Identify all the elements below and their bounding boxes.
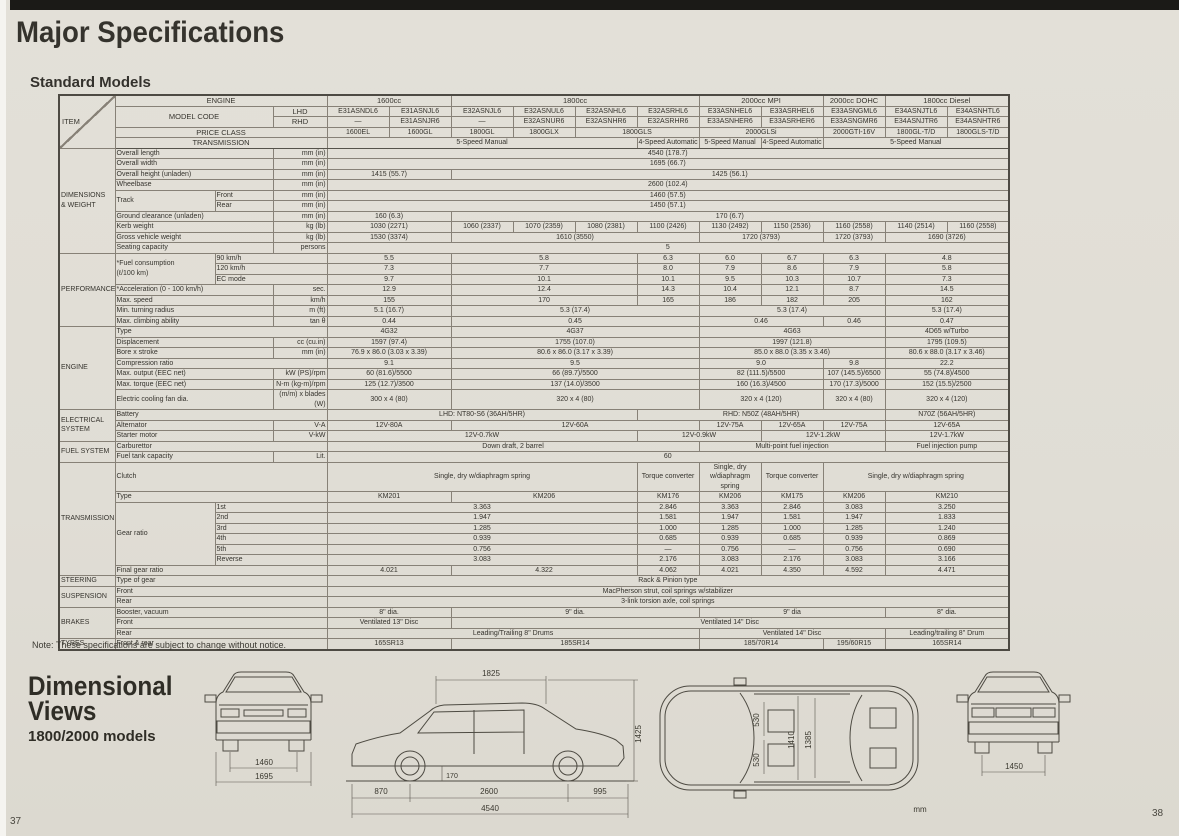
spec-value: 0.685 (637, 534, 699, 545)
row-label: Max. output (EEC net) (115, 369, 273, 380)
dimensional-views-section: Dimensional Views 1800/2000 models (28, 660, 1158, 828)
row-unit: mm (in) (273, 159, 327, 170)
spec-value: 165 (637, 295, 699, 306)
spec-value: 0.756 (699, 544, 761, 555)
spec-value: RHD: N50Z (48AH/5HR) (637, 410, 885, 421)
spec-value: 1.947 (823, 513, 885, 524)
section-label: BRAKES (59, 607, 115, 639)
spec-row: TRANSMISSION5-Speed Manual4-Speed Automa… (59, 138, 1009, 149)
spec-value: 4G37 (451, 327, 699, 338)
spec-value: 1.000 (761, 523, 823, 534)
spec-value: 1.285 (699, 523, 761, 534)
transmission-type: 5-Speed Manual (327, 138, 637, 149)
spec-value: 82 (111.5)/5500 (699, 369, 823, 380)
spec-value: 12V-65A (885, 420, 1009, 431)
spec-value: 55 (74.8)/4500 (885, 369, 1009, 380)
spec-value: 1460 (57.5) (327, 190, 1009, 201)
rear-track-dim: 1450 (1005, 762, 1023, 771)
spec-row: Ground clearance (unladen)mm (in)160 (6.… (59, 211, 1009, 222)
row-group-label: *Fuel consumption (ℓ/100 km) (115, 253, 215, 285)
spec-value: 1695 (66.7) (327, 159, 1009, 170)
spec-value: 1070 (2359) (513, 222, 575, 233)
side-roof-dim: 1825 (482, 669, 500, 678)
model-code-header: MODEL CODE (115, 106, 273, 127)
row-unit: N-m (kg-m)/rpm (273, 379, 327, 390)
dimensional-heading-line2: Views (28, 699, 172, 724)
price-class: 1800GL (451, 127, 513, 138)
spec-row: TypeKM201KM206KM176KM206KM175KM206KM210 (59, 492, 1009, 503)
spec-row: ELECTRICAL SYSTEMBatteryLHD: NT80-S6 (36… (59, 410, 1009, 421)
spec-value: 1.240 (885, 523, 1009, 534)
transmission-type: 5-Speed Manual (699, 138, 761, 149)
top-front-seat-dim: 530 (752, 713, 761, 727)
spec-value: 7.3 (885, 274, 1009, 285)
spec-value: N70Z (56AH/5HR) (885, 410, 1009, 421)
spec-value: 6.7 (761, 253, 823, 264)
spec-row: TrackFrontmm (in)1460 (57.5) (59, 190, 1009, 201)
spec-row: SUSPENSIONFrontMacPherson strut, coil sp… (59, 586, 1009, 597)
model-code-rhd: — (451, 117, 513, 128)
spec-value: 1130 (2492) (699, 222, 761, 233)
row-label: Max. climbing ability (115, 316, 273, 327)
section-label: STEERING (59, 576, 115, 587)
spec-value: 7.9 (699, 264, 761, 275)
spec-value: 0.939 (823, 534, 885, 545)
row-label: Fuel tank capacity (115, 452, 273, 463)
price-class: 2000GLSi (699, 127, 823, 138)
spec-value: 1597 (97.4) (327, 337, 451, 348)
spec-value: Ventilated 14" Disc (699, 628, 885, 639)
price-class: 1800GL-T/D (885, 127, 947, 138)
spec-value: 0.939 (327, 534, 637, 545)
spec-value: 5.3 (17.4) (699, 306, 885, 317)
model-code-rhd: E33ASRHER6 (761, 117, 823, 128)
spec-value: 4.021 (699, 565, 761, 576)
spec-value: 8.6 (761, 264, 823, 275)
spec-value: Single, dry w/diaphragm spring (823, 462, 1009, 492)
row-sub-label: 5th (215, 544, 327, 555)
spec-row: BRAKESBooster, vacuum8" dia.9" dia.9" di… (59, 607, 1009, 618)
spec-value: 80.6 x 88.0 (3.17 x 3.46) (885, 348, 1009, 359)
spec-value: 186 (699, 295, 761, 306)
spec-value: 3.363 (699, 502, 761, 513)
spec-value: 14.5 (885, 285, 1009, 296)
transmission-header: TRANSMISSION (115, 138, 327, 149)
spec-value: 320 x 4 (120) (885, 390, 1009, 410)
spec-value: KM206 (823, 492, 885, 503)
row-unit: mm (in) (273, 190, 327, 201)
spec-value: 10.3 (761, 274, 823, 285)
spec-value: 5.3 (17.4) (451, 306, 699, 317)
spec-value: 1720 (3793) (699, 232, 823, 243)
row-group-label: Track (115, 190, 215, 211)
spec-row: FUEL SYSTEMCarburettorDown draft, 2 barr… (59, 441, 1009, 452)
spec-value: 0.690 (885, 544, 1009, 555)
spec-value: 3-link torsion axle, coil springs (327, 597, 1009, 608)
spec-value: 10.1 (451, 274, 637, 285)
row-unit: V-A (273, 420, 327, 431)
row-sub-label: EC mode (215, 274, 327, 285)
spec-value: 1690 (3726) (885, 232, 1009, 243)
spec-value: Multi-point fuel injection (699, 441, 885, 452)
spec-value: Single, dry w/diaphragm spring (327, 462, 637, 492)
spec-value: KM176 (637, 492, 699, 503)
spec-value: 1415 (55.7) (327, 169, 451, 180)
row-label: Starter motor (115, 431, 273, 442)
model-code-lhd: E34ASNHTL6 (947, 106, 1009, 117)
spec-value: 76.9 x 86.0 (3.03 x 3.39) (327, 348, 451, 359)
spec-value: 8" dia. (327, 607, 451, 618)
spec-row: PRICE CLASS1600EL1600GL1800GL1800GLX1800… (59, 127, 1009, 138)
spec-value: 1795 (109.5) (885, 337, 1009, 348)
spec-value: 1450 (57.1) (327, 201, 1009, 212)
spec-value: 300 x 4 (80) (327, 390, 451, 410)
spec-value: 3.083 (823, 502, 885, 513)
row-sub-label: Reverse (215, 555, 327, 566)
page-number-left: 37 (10, 816, 21, 827)
spec-row: AlternatorV-A12V-80A12V-60A12V-75A12V-65… (59, 420, 1009, 431)
spec-value: KM210 (885, 492, 1009, 503)
spec-value: 4D65 w/Turbo (885, 327, 1009, 338)
spec-value: Down draft, 2 barrel (327, 441, 699, 452)
spec-value: 1.285 (823, 523, 885, 534)
row-label: Overall width (115, 159, 273, 170)
spec-value: 8.0 (637, 264, 699, 275)
row-unit: kg (lb) (273, 232, 327, 243)
spec-value: 10.4 (699, 285, 761, 296)
spec-value: 3.363 (327, 502, 637, 513)
spec-value: 1997 (121.8) (699, 337, 885, 348)
spec-row: Overall widthmm (in)1695 (66.7) (59, 159, 1009, 170)
section-label: FUEL SYSTEM (59, 441, 115, 462)
spec-row: Min. turning radiusm (ft)5.1 (16.7)5.3 (… (59, 306, 1009, 317)
front-view-drawing: 1460 1695 (188, 660, 338, 820)
spec-value: 0.44 (327, 316, 451, 327)
transmission-type: 4-Speed Automatic (761, 138, 823, 149)
section-label: ELECTRICAL SYSTEM (59, 410, 115, 442)
spec-value: 0.939 (699, 534, 761, 545)
model-code-lhd: E31ASNJL6 (389, 106, 451, 117)
side-view-drawing: 1825 1425 170 870 2600 995 4540 (338, 660, 648, 825)
spec-row: Compression ratio9.19.59.09.822.2 (59, 358, 1009, 369)
spec-value: 4.322 (451, 565, 637, 576)
spec-value: 12V-80A (327, 420, 451, 431)
row-label: Type of gear (115, 576, 327, 587)
spec-value: Leading/trailing 8" Drum (885, 628, 1009, 639)
row-label: Bore x stroke (115, 348, 273, 359)
spec-value: 12V-60A (451, 420, 699, 431)
row-unit: Lit. (273, 452, 327, 463)
spec-value: 9" dia (699, 607, 885, 618)
spec-value: 1.581 (761, 513, 823, 524)
spec-value: LHD: NT80-S6 (36AH/5HR) (327, 410, 637, 421)
row-label: Seating capacity (115, 243, 273, 254)
spec-value: 3.250 (885, 502, 1009, 513)
row-label: Gross vehicle weight (115, 232, 273, 243)
spec-value: 4.471 (885, 565, 1009, 576)
spec-value: 4.8 (885, 253, 1009, 264)
model-code-lhd: E31ASNDL6 (327, 106, 389, 117)
spec-value: 1080 (2381) (575, 222, 637, 233)
spec-value: 85.0 x 88.0 (3.35 x 3.46) (699, 348, 885, 359)
spec-value: — (761, 544, 823, 555)
spec-value: 170 (451, 295, 637, 306)
spec-value: 7.7 (451, 264, 637, 275)
section-label: ENGINE (59, 327, 115, 410)
spec-value: 9.8 (823, 358, 885, 369)
spec-value: 5.1 (16.7) (327, 306, 451, 317)
spec-value: 165SR13 (327, 639, 451, 650)
spec-value: 4.021 (327, 565, 451, 576)
spec-value: 12.1 (761, 285, 823, 296)
spec-row: Bore x strokemm (in)76.9 x 86.0 (3.03 x … (59, 348, 1009, 359)
row-unit: V-kW (273, 431, 327, 442)
model-code-lhd: E32ASNJL6 (451, 106, 513, 117)
spec-value: 5.8 (451, 253, 637, 264)
spec-row: *Acceleration (0 - 100 km/h)sec.12.912.4… (59, 285, 1009, 296)
row-unit: kW (PS)/rpm (273, 369, 327, 380)
spec-value: 0.756 (823, 544, 885, 555)
model-code-rhd: E33ASNGMR6 (823, 117, 885, 128)
spec-row: STEERINGType of gearRack & Pinion type (59, 576, 1009, 587)
spec-value: 4G63 (699, 327, 885, 338)
row-label: *Acceleration (0 - 100 km/h) (115, 285, 273, 296)
spec-table-head: ITEMENGINE1600cc1800cc2000cc MPI2000cc D… (59, 95, 1009, 148)
front-track-dim: 1460 (255, 758, 273, 767)
spec-row: Overall height (unladen)mm (in)1415 (55.… (59, 169, 1009, 180)
spec-value: 1.581 (637, 513, 699, 524)
row-unit: mm (in) (273, 169, 327, 180)
spec-value: 12V-65A (761, 420, 823, 431)
spec-value: 182 (761, 295, 823, 306)
dimension-unit-label: mm (913, 805, 927, 814)
row-label: Battery (115, 410, 327, 421)
spec-value: Torque converter (637, 462, 699, 492)
spec-value: 170 (17.3)/5000 (823, 379, 885, 390)
model-code-rhd: — (327, 117, 389, 128)
page-number-right: 38 (1152, 808, 1163, 819)
spec-value: 7.9 (823, 264, 885, 275)
model-code-rhd: E34ASNJTR6 (885, 117, 947, 128)
rear-view-drawing: 1450 (938, 660, 1088, 820)
section-label: TRANSMISSION (59, 462, 115, 576)
spec-value: 195/60R15 (823, 639, 885, 650)
spec-value: 12V-0.9kW (637, 431, 761, 442)
side-height-dim: 1425 (634, 725, 643, 743)
spec-value: 6.3 (637, 253, 699, 264)
spec-row: Max. torque (EEC net)N-m (kg-m)/rpm125 (… (59, 379, 1009, 390)
spec-value: Rack & Pinion type (327, 576, 1009, 587)
spec-value: 9.7 (327, 274, 451, 285)
spec-row: Starter motorV-kW12V-0.7kW12V-0.9kW12V-1… (59, 431, 1009, 442)
spec-value: 1530 (3374) (327, 232, 451, 243)
spec-value: 320 x 4 (120) (699, 390, 823, 410)
spec-value: 320 x 4 (80) (451, 390, 699, 410)
model-code-lhd: E33ASRHEL6 (761, 106, 823, 117)
row-label: Compression ratio (115, 358, 327, 369)
spec-value: 1100 (2426) (637, 222, 699, 233)
spec-value: 10.1 (637, 274, 699, 285)
spec-value: 0.756 (327, 544, 637, 555)
spec-row: Max. output (EEC net)kW (PS)/rpm60 (81.6… (59, 369, 1009, 380)
model-code-rhd: E32ASNUR6 (513, 117, 575, 128)
spec-value: Ventilated 13" Disc (327, 618, 451, 629)
row-sub-label: 90 km/h (215, 253, 327, 264)
spec-value: 60 (327, 452, 1009, 463)
section-label: DIMENSIONS & WEIGHT (59, 148, 115, 253)
price-class: 1800GLX (513, 127, 575, 138)
spec-value: 9.0 (699, 358, 823, 369)
row-label: Wheelbase (115, 180, 273, 191)
model-code-lhd: E33ASNHEL6 (699, 106, 761, 117)
row-unit: km/h (273, 295, 327, 306)
spec-value: 0.45 (451, 316, 699, 327)
row-sub-label: 120 km/h (215, 264, 327, 275)
spec-value: 7.3 (327, 264, 451, 275)
spec-value: 12V-1.2kW (761, 431, 885, 442)
model-code-lhd: E32ASNUL6 (513, 106, 575, 117)
row-label: Displacement (115, 337, 273, 348)
spec-value: 1610 (3550) (451, 232, 699, 243)
dimensional-subheading: 1800/2000 models (28, 728, 188, 745)
row-label: Type (115, 492, 327, 503)
row-label: Rear (115, 597, 327, 608)
spec-row: Gross vehicle weightkg (lb)1530 (3374)16… (59, 232, 1009, 243)
spec-value: 3.083 (327, 555, 637, 566)
spec-value: 160 (16.3)/4500 (699, 379, 823, 390)
row-label: Type (115, 327, 327, 338)
spec-value: 3.166 (885, 555, 1009, 566)
spec-value: 1425 (56.1) (451, 169, 1009, 180)
row-label: Carburettor (115, 441, 327, 452)
item-label: ITEM (61, 117, 80, 126)
row-label: Clutch (115, 462, 327, 492)
model-code-rhd: E32ASNHR6 (575, 117, 637, 128)
model-code-rhd: E33ASNHER6 (699, 117, 761, 128)
spec-value: 12V-0.7kW (327, 431, 637, 442)
spec-value: 1.000 (637, 523, 699, 534)
top-interior-width-front-dim: 1410 (787, 731, 796, 749)
row-group-label: Gear ratio (115, 502, 215, 565)
top-black-bar (10, 0, 1179, 10)
spec-value: 4.062 (637, 565, 699, 576)
row-label: Front (115, 586, 327, 597)
price-class: 1800GLS-T/D (947, 127, 1009, 138)
top-view-drawing: 530 1410 1385 530 mm (648, 660, 938, 820)
spec-row: Max. speedkm/h155170165186182205162 (59, 295, 1009, 306)
spec-value: 5.8 (885, 264, 1009, 275)
row-label: Ground clearance (unladen) (115, 211, 273, 222)
engine-group-header: 1600cc (327, 95, 451, 106)
dimensional-views-heading: Dimensional Views 1800/2000 models (28, 660, 188, 745)
side-clearance-dim: 170 (446, 773, 458, 780)
spec-value: Leading/Trailing 8" Drums (327, 628, 699, 639)
spec-value: 2.176 (637, 555, 699, 566)
spec-value: 4.350 (761, 565, 823, 576)
lhd-label: LHD (273, 106, 327, 117)
row-unit: mm (in) (273, 201, 327, 212)
scanned-page: Major Specifications Standard Models ITE… (6, 0, 1179, 836)
spec-value: 1720 (3793) (823, 232, 885, 243)
spec-value: 4.592 (823, 565, 885, 576)
spec-value: 155 (327, 295, 451, 306)
row-label: Min. turning radius (115, 306, 273, 317)
spec-value: Torque converter (761, 462, 823, 492)
spec-value: KM206 (451, 492, 637, 503)
spec-value: 185/70R14 (699, 639, 823, 650)
price-class: 1600GL (389, 127, 451, 138)
row-label: Max. speed (115, 295, 273, 306)
spec-table: ITEMENGINE1600cc1800cc2000cc MPI2000cc D… (58, 94, 1010, 651)
spec-value: 8" dia. (885, 607, 1009, 618)
transmission-type: 5-Speed Manual (823, 138, 1009, 149)
spec-row: TRANSMISSIONClutchSingle, dry w/diaphrag… (59, 462, 1009, 492)
spec-value: Single, dry w/diaphragm spring (699, 462, 761, 492)
spec-value: 66 (89.7)/5500 (451, 369, 699, 380)
spec-value: 170 (6.7) (451, 211, 1009, 222)
spec-row: Electric cooling fan dia.(m/m) x blades … (59, 390, 1009, 410)
row-unit: (m/m) x blades (W) (273, 390, 327, 410)
spec-value: 1.833 (885, 513, 1009, 524)
spec-value: 2600 (102.4) (327, 180, 1009, 191)
spec-value: 80.6 x 86.0 (3.17 x 3.39) (451, 348, 699, 359)
row-unit: m (ft) (273, 306, 327, 317)
row-sub-label: 3rd (215, 523, 327, 534)
spec-value: 0.869 (885, 534, 1009, 545)
model-code-lhd: E32ASNHL6 (575, 106, 637, 117)
spec-value: 60 (81.6)/5500 (327, 369, 451, 380)
spec-row: ENGINEType4G324G374G634D65 w/Turbo (59, 327, 1009, 338)
spec-value: KM201 (327, 492, 451, 503)
engine-group-header: 2000cc DOHC (823, 95, 885, 106)
spec-value: 12V-1.7kW (885, 431, 1009, 442)
spec-row: Rear3-link torsion axle, coil springs (59, 597, 1009, 608)
spec-table-body: DIMENSIONS & WEIGHTOverall lengthmm (in)… (59, 148, 1009, 650)
row-label: Front (115, 618, 327, 629)
price-class: 1800GLS (575, 127, 699, 138)
engine-group-header: 2000cc MPI (699, 95, 823, 106)
spec-value: 22.2 (885, 358, 1009, 369)
spec-value: 205 (823, 295, 885, 306)
spec-row: PERFORMANCE*Fuel consumption (ℓ/100 km)9… (59, 253, 1009, 264)
row-label: Kerb weight (115, 222, 273, 233)
spec-value: 9.5 (699, 274, 761, 285)
front-width-dim: 1695 (255, 772, 273, 781)
spec-value: 3.083 (823, 555, 885, 566)
spec-value: 165SR14 (885, 639, 1009, 650)
row-label: Alternator (115, 420, 273, 431)
spec-value: 185SR14 (451, 639, 699, 650)
spec-row: FrontVentilated 13" DiscVentilated 14" D… (59, 618, 1009, 629)
spec-value: 107 (145.5)/6500 (823, 369, 885, 380)
spec-value: 152 (15.5)/2500 (885, 379, 1009, 390)
row-sub-label: 2nd (215, 513, 327, 524)
item-diagonal-cell: ITEM (59, 95, 115, 148)
model-code-rhd: E31ASNJR6 (389, 117, 451, 128)
row-unit: mm (in) (273, 211, 327, 222)
row-label: Electric cooling fan dia. (115, 390, 273, 410)
spec-row: Displacementcc (cu.in)1597 (97.4)1755 (1… (59, 337, 1009, 348)
spec-value: 2.846 (637, 502, 699, 513)
spec-value: Ventilated 14" Disc (451, 618, 1009, 629)
spec-value: 12.4 (451, 285, 637, 296)
side-rear-overhang-dim: 995 (593, 787, 607, 796)
spec-value: 1.947 (699, 513, 761, 524)
model-code-lhd: E32ASRHL6 (637, 106, 699, 117)
spec-value: 0.46 (699, 316, 823, 327)
spec-row: Fuel tank capacityLit.60 (59, 452, 1009, 463)
spec-value: 5.3 (17.4) (885, 306, 1009, 317)
